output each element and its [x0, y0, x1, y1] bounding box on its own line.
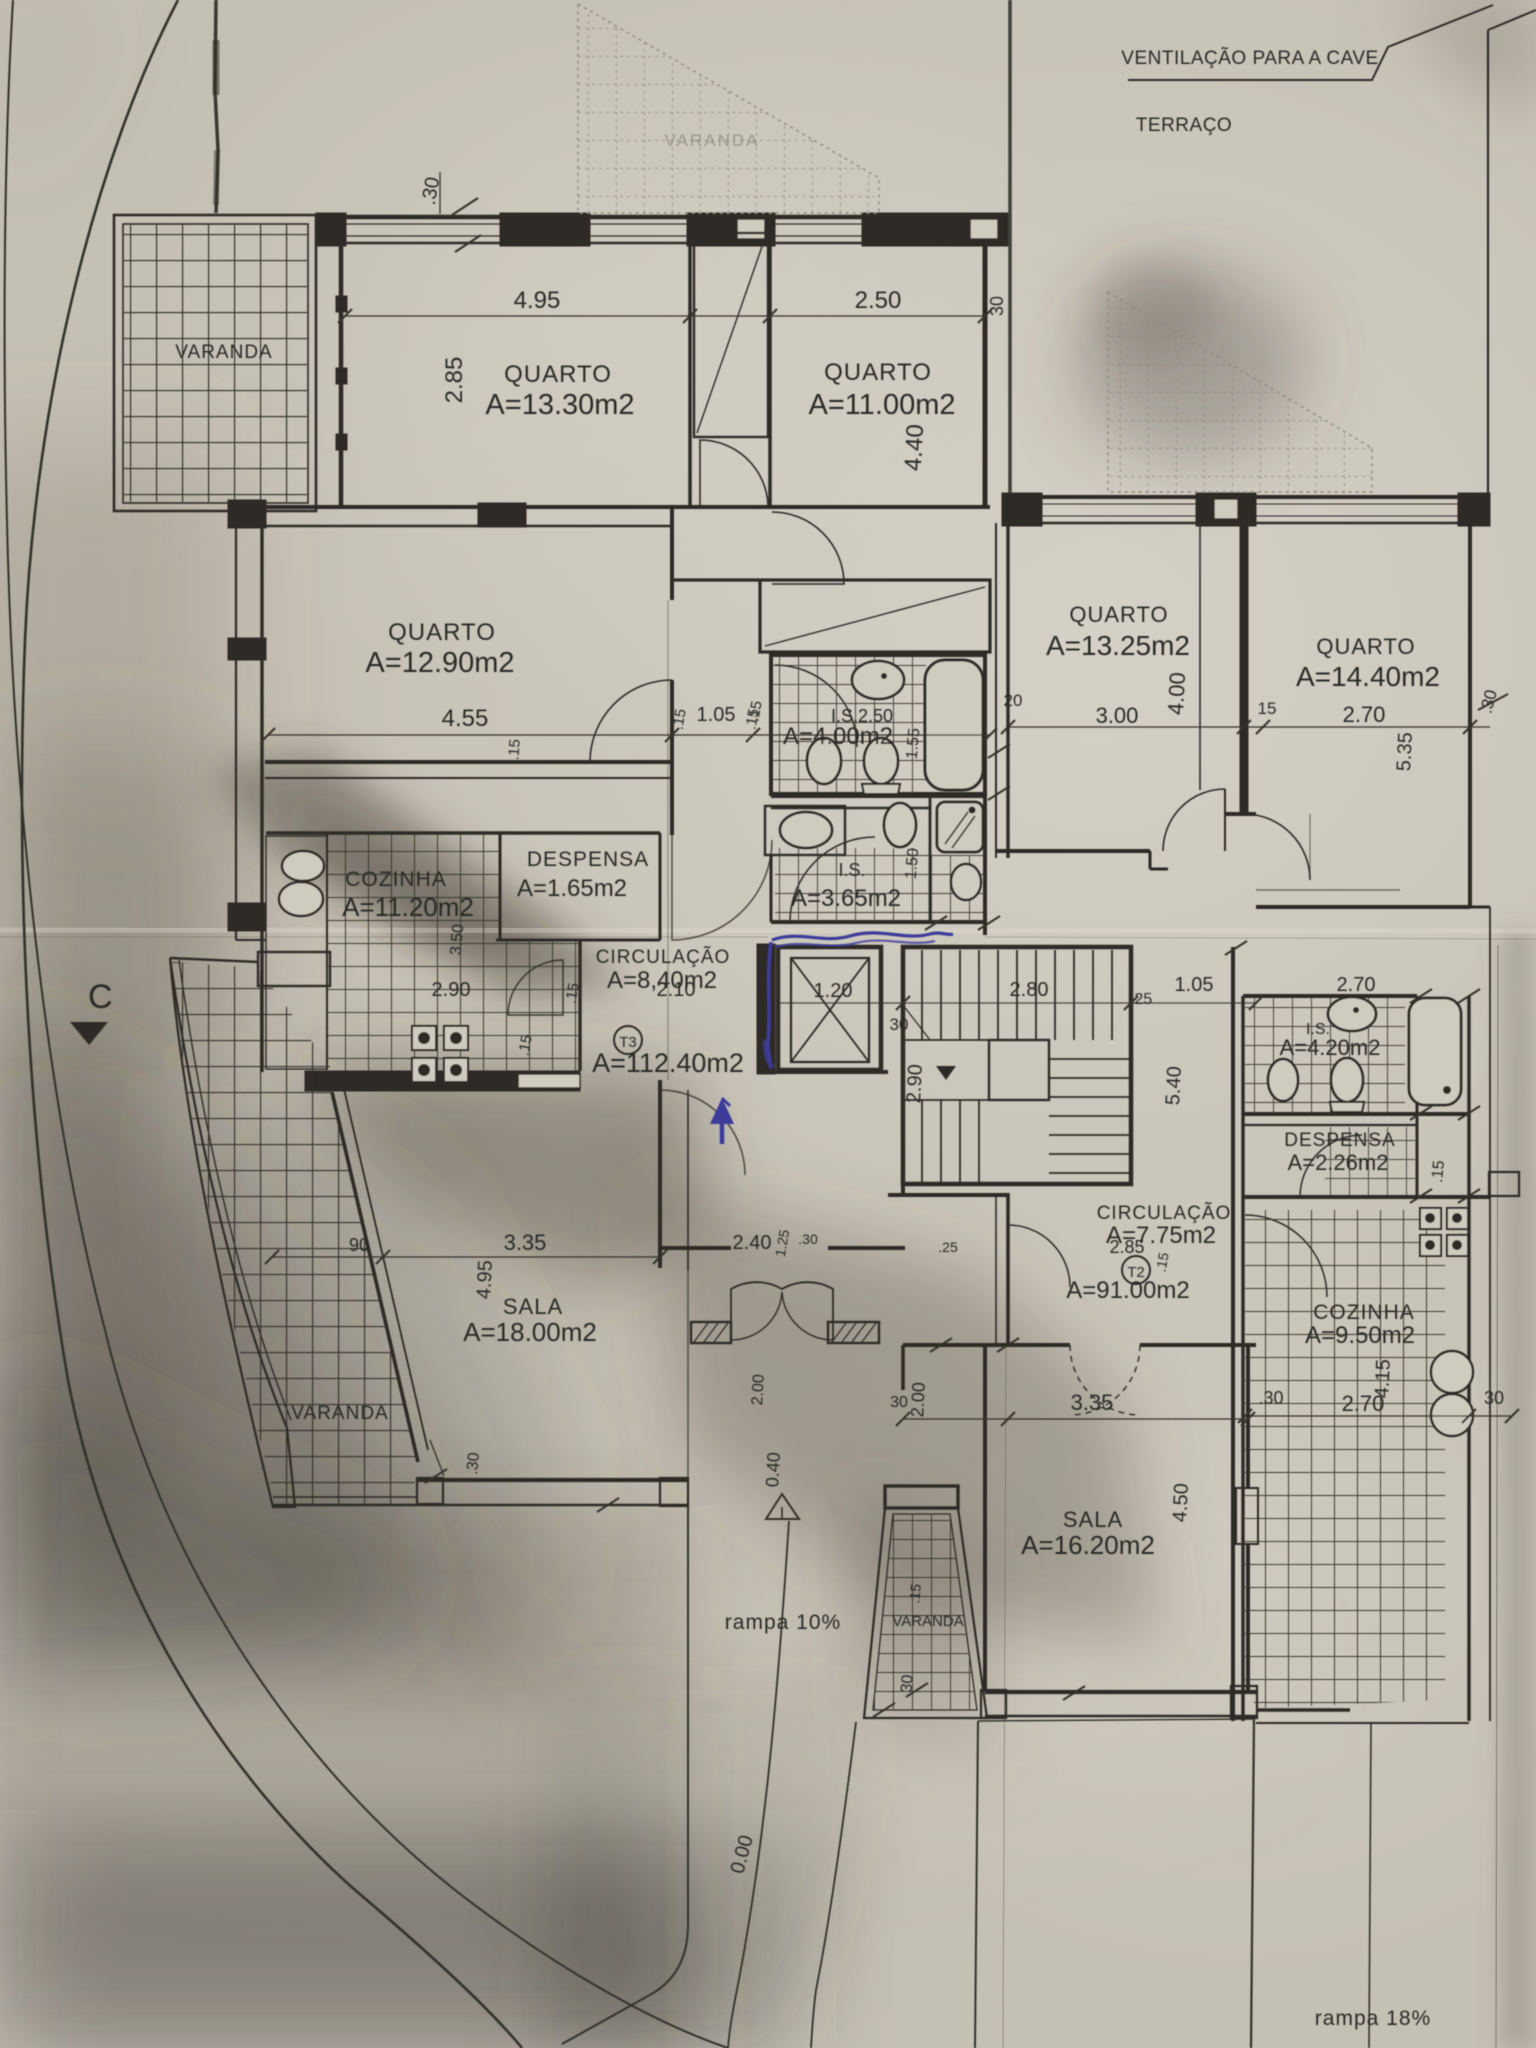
svg-text:.25: .25 [938, 1239, 958, 1255]
svg-text:.15: .15 [1429, 1160, 1448, 1184]
svg-text:3.00: 3.00 [1096, 703, 1139, 728]
svg-text:A=112.40m2: A=112.40m2 [592, 1048, 744, 1078]
svg-text:90: 90 [349, 1235, 369, 1255]
svg-text:TERRAÇO: TERRAÇO [1136, 115, 1232, 136]
svg-text:2.85: 2.85 [441, 357, 468, 404]
svg-text:A=14.40m2: A=14.40m2 [1296, 661, 1440, 692]
svg-text:A=13.25m2: A=13.25m2 [1046, 630, 1190, 661]
svg-text:2.50: 2.50 [855, 287, 902, 314]
svg-text:VARANDA: VARANDA [175, 342, 272, 363]
svg-text:.25: .25 [1130, 991, 1152, 1008]
svg-text:QUARTO: QUARTO [504, 361, 612, 388]
svg-text:rampa 10%: rampa 10% [725, 1611, 841, 1634]
svg-text:4.40: 4.40 [900, 424, 929, 472]
svg-text:2.40: 2.40 [733, 1232, 772, 1254]
svg-text:1.20: 1.20 [814, 980, 853, 1002]
svg-text:A=9.50m2: A=9.50m2 [1305, 1322, 1415, 1349]
svg-text:2.70: 2.70 [1343, 702, 1386, 727]
svg-text:VARANDA: VARANDA [892, 1613, 963, 1630]
svg-text:.15: .15 [505, 738, 524, 760]
svg-text:2.70: 2.70 [1342, 1391, 1385, 1416]
svg-text:A=4.20m2: A=4.20m2 [1280, 1035, 1381, 1060]
svg-text:1.05: 1.05 [1175, 974, 1214, 996]
svg-text:.30: .30 [1258, 1388, 1283, 1408]
svg-text:2.10: 2.10 [657, 979, 696, 1001]
svg-text:4.95: 4.95 [473, 1260, 497, 1300]
svg-text:DESPENSA: DESPENSA [1284, 1130, 1395, 1151]
svg-text:2.85: 2.85 [1109, 1237, 1144, 1257]
svg-text:CIRCULAÇÃO: CIRCULAÇÃO [596, 946, 731, 968]
svg-text:rampa 18%: rampa 18% [1315, 2007, 1431, 2030]
svg-text:COZINHA: COZINHA [1313, 1301, 1415, 1324]
svg-text:A=91.00m2: A=91.00m2 [1066, 1277, 1189, 1304]
svg-text:30: 30 [1484, 1388, 1504, 1408]
svg-text:2.00: 2.00 [907, 1382, 929, 1418]
svg-text:4.95: 4.95 [514, 287, 561, 314]
svg-text:VARANDA: VARANDA [665, 131, 760, 150]
svg-text:.15: .15 [745, 699, 765, 722]
svg-text:QUARTO: QUARTO [1069, 602, 1168, 627]
svg-text:2.70: 2.70 [1337, 974, 1376, 996]
svg-text:A=4.00m2: A=4.00m2 [783, 723, 893, 750]
svg-text:5.40: 5.40 [1162, 1066, 1186, 1106]
svg-text:CIRCULAÇÃO: CIRCULAÇÃO [1097, 1202, 1232, 1224]
svg-text:3.35: 3.35 [504, 1230, 547, 1255]
svg-text:I.S.: I.S. [838, 860, 865, 880]
svg-text:C: C [88, 978, 114, 1016]
svg-text:2.90: 2.90 [432, 979, 471, 1001]
svg-text:1.50: 1.50 [903, 847, 923, 880]
svg-text:.15: .15 [906, 1583, 924, 1604]
svg-text:.15: .15 [1153, 1251, 1172, 1273]
svg-text:QUARTO: QUARTO [824, 359, 932, 386]
svg-text:A=13.30m2: A=13.30m2 [485, 389, 634, 421]
svg-text:A=3.65m2: A=3.65m2 [791, 885, 901, 912]
svg-text:4.50: 4.50 [1169, 1483, 1193, 1523]
svg-text:30: 30 [987, 296, 1007, 316]
svg-text:3.35: 3.35 [1071, 1390, 1114, 1415]
svg-text:QUARTO: QUARTO [388, 619, 496, 646]
svg-text:A=1.65m2: A=1.65m2 [517, 875, 627, 902]
svg-text:SALA: SALA [503, 1294, 563, 1319]
svg-text:.30: .30 [464, 1452, 483, 1476]
svg-text:DESPENSA: DESPENSA [527, 848, 649, 871]
svg-text:A=11.20m2: A=11.20m2 [342, 892, 474, 922]
svg-text:.15: .15 [562, 981, 582, 1004]
svg-text:30: 30 [898, 1674, 916, 1693]
svg-text:2.80: 2.80 [1010, 979, 1049, 1001]
svg-text:5.35: 5.35 [1393, 732, 1417, 772]
svg-text:0.40: 0.40 [762, 1452, 784, 1488]
svg-text:3.50: 3.50 [448, 923, 468, 956]
svg-text:30: 30 [890, 1015, 909, 1034]
svg-text:A=12.90m2: A=12.90m2 [365, 647, 514, 679]
svg-text:4.55: 4.55 [442, 705, 489, 732]
svg-text:A=2.26m2: A=2.26m2 [1288, 1150, 1389, 1175]
svg-text:4.00: 4.00 [1163, 672, 1190, 716]
svg-text:VARANDA: VARANDA [291, 1403, 388, 1424]
svg-text:.15: .15 [515, 1033, 535, 1056]
svg-text:A=11.00m2: A=11.00m2 [809, 389, 956, 421]
svg-text:30: 30 [890, 1394, 908, 1411]
svg-text:1.05: 1.05 [697, 704, 736, 726]
svg-text:A=16.20m2: A=16.20m2 [1021, 1530, 1155, 1560]
svg-text:VENTILAÇÃO PARA A CAVE: VENTILAÇÃO PARA A CAVE [1121, 47, 1378, 69]
svg-text:15: 15 [1258, 699, 1277, 718]
svg-text:.30: .30 [798, 1231, 818, 1247]
svg-text:COZINHA: COZINHA [345, 868, 447, 891]
svg-text:1.55: 1.55 [904, 727, 924, 760]
svg-text:20: 20 [1004, 691, 1023, 710]
svg-text:QUARTO: QUARTO [1316, 634, 1415, 659]
svg-text:2.90: 2.90 [903, 1064, 927, 1104]
svg-text:2.00: 2.00 [749, 1374, 768, 1406]
svg-text:SALA: SALA [1063, 1507, 1123, 1532]
svg-text:A=18.00m2: A=18.00m2 [463, 1317, 597, 1347]
svg-text:.15: .15 [669, 707, 689, 730]
